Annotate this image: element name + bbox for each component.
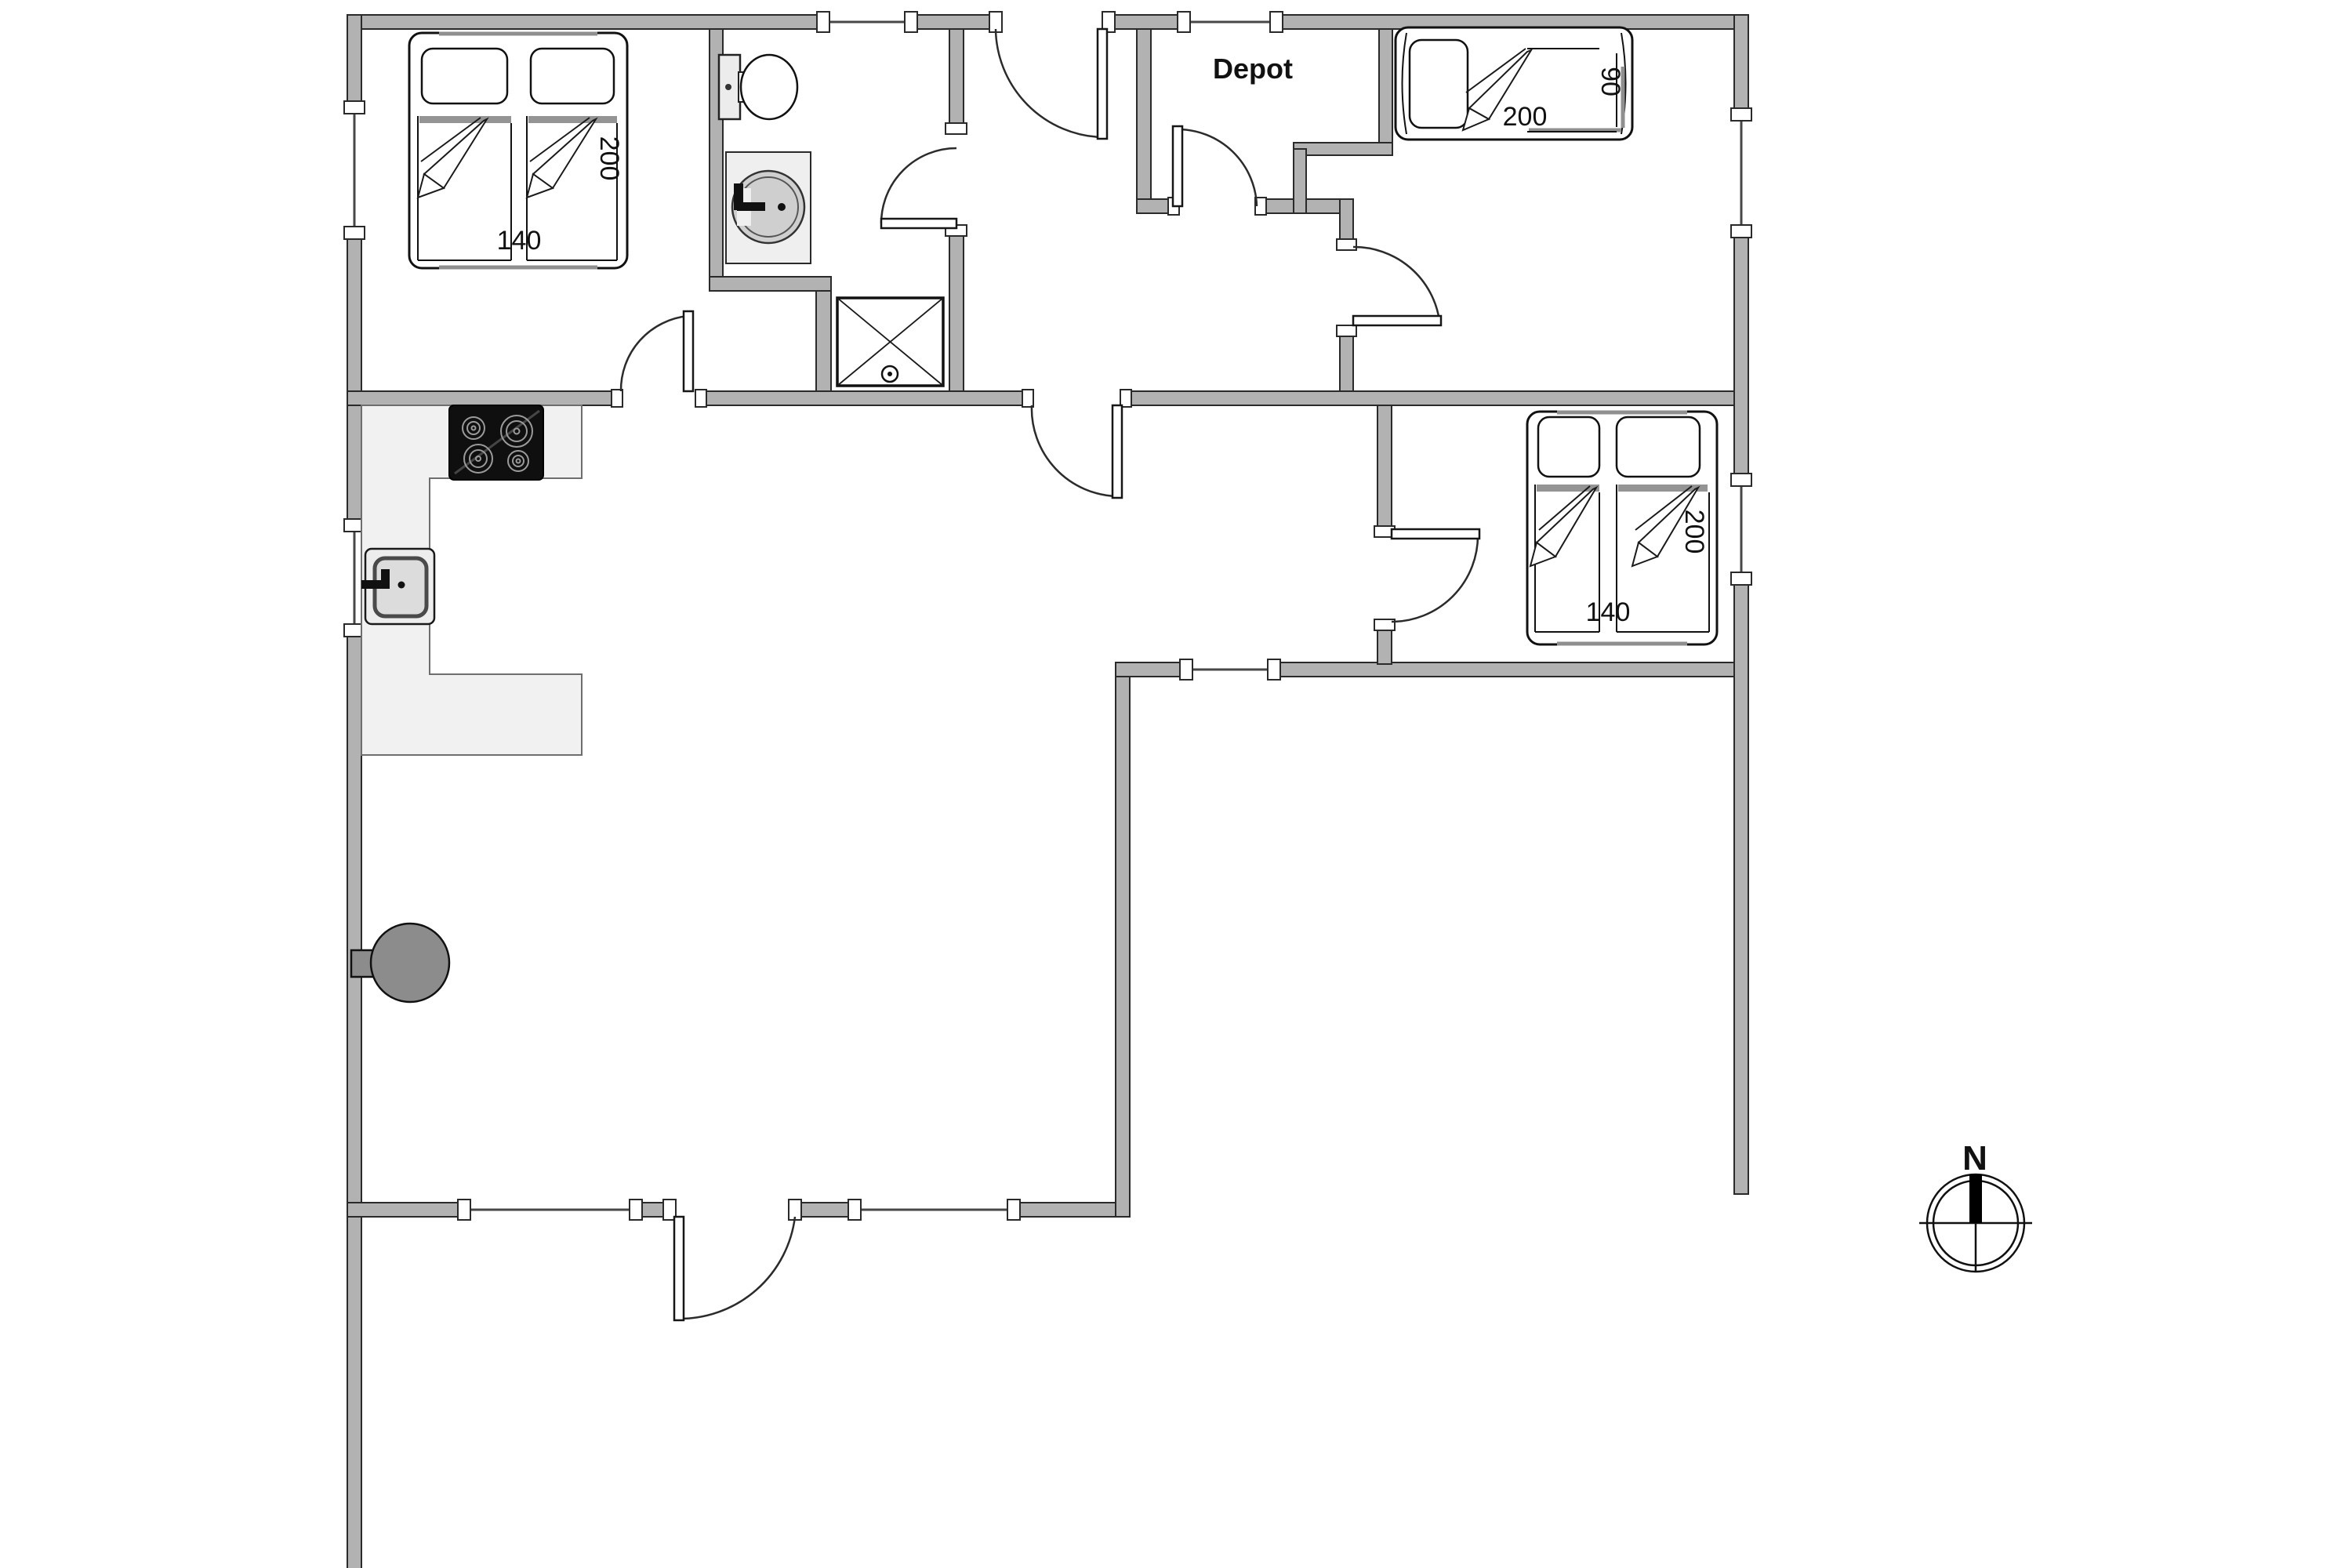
bed-width-label: 140 (497, 226, 542, 256)
bed-width-label: 140 (1586, 597, 1631, 627)
bed-length-label: 200 (1503, 102, 1548, 132)
north-label: N (1962, 1139, 1987, 1178)
single-bed-top-right: 200 90 (1396, 27, 1632, 140)
terrace-door (674, 1217, 795, 1320)
cooktop-icon (449, 405, 543, 480)
entrance-door (996, 29, 1107, 139)
pillow-icon (1617, 417, 1700, 477)
pillow-icon (1410, 40, 1468, 128)
living-room-door (1032, 405, 1122, 498)
bed-width-label: 90 (1595, 67, 1625, 96)
wash-basin-icon (726, 152, 811, 263)
kitchen-sink-icon (361, 549, 434, 624)
pillow-icon (531, 49, 614, 103)
pillow-icon (422, 49, 507, 103)
north-needle-icon (1969, 1174, 1982, 1223)
double-bed-middle-right: 200 140 (1527, 412, 1717, 644)
double-bed-top-left: 200 140 (409, 33, 627, 268)
bedroom-top-left-door (621, 311, 693, 391)
pillow-icon (1538, 417, 1599, 477)
toilet-icon (719, 55, 797, 119)
wood-stove-icon (351, 924, 449, 1002)
bedroom-top-right-door (1353, 247, 1441, 325)
shower-icon (837, 298, 943, 386)
kitchen (361, 405, 582, 755)
floor-plan: 200 140 Depot (0, 0, 2352, 1568)
bathroom-door (881, 148, 956, 228)
bedroom-middle-right-door (1392, 529, 1479, 622)
bed-length-label: 200 (1679, 510, 1709, 554)
depot-room-label: Depot (1213, 53, 1293, 85)
compass-rose: N (1919, 1139, 2032, 1272)
bed-length-label: 200 (594, 136, 624, 181)
depot-door (1173, 126, 1257, 206)
